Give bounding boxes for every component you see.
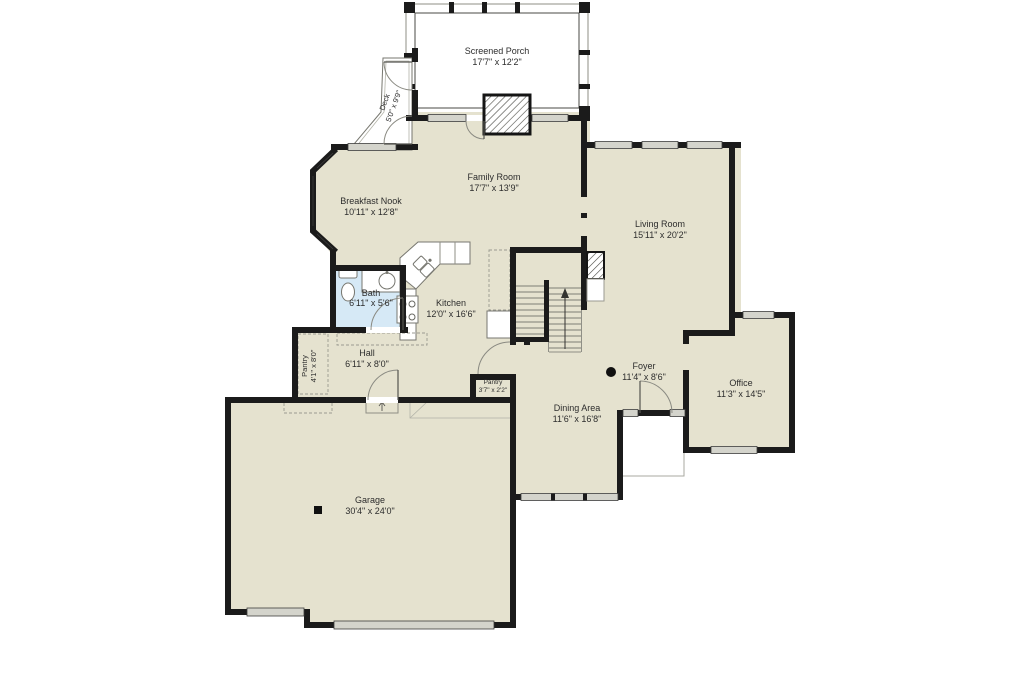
room-label-screened-porch: Screened Porch xyxy=(465,46,530,56)
wall-segment xyxy=(789,312,795,453)
room-dims-screened-porch: 17'7" x 12'2" xyxy=(472,57,521,67)
kitchen-cabinet-box xyxy=(487,311,513,338)
post-marker xyxy=(314,506,322,514)
wall-segment xyxy=(412,90,418,118)
window xyxy=(687,142,722,149)
room-label-office: Office xyxy=(729,378,752,388)
front-door-sidelite xyxy=(623,410,638,417)
room-label-garage: Garage xyxy=(355,495,385,505)
porch-fireplace xyxy=(484,95,530,134)
window xyxy=(642,142,678,149)
room-label-pantry: Pantry xyxy=(300,355,309,377)
floor-plan-page: Screened Porch 17'7" x 12'2" Deck 5'0" x… xyxy=(0,0,1024,681)
room-label-dining-area: Dining Area xyxy=(554,403,601,413)
wall-segment xyxy=(510,247,587,253)
garage-door-opening xyxy=(366,397,398,403)
room-dims-kitchen: 12'0" x 16'6" xyxy=(426,309,475,319)
wall-segment xyxy=(510,374,516,628)
vanity-faucet xyxy=(386,271,389,274)
room-label-bath: Bath xyxy=(362,288,381,298)
wall-segment xyxy=(225,397,231,615)
wall-segment xyxy=(330,248,336,333)
wall-segment xyxy=(412,144,418,150)
room-label-family-room: Family Room xyxy=(467,172,520,182)
room-label-foyer: Foyer xyxy=(632,361,655,371)
living-hearth xyxy=(587,279,604,301)
wall-segment xyxy=(729,142,735,336)
window xyxy=(532,115,568,122)
room-dims-hall: 6'11" x 8'0" xyxy=(345,359,389,369)
wall-segment xyxy=(683,330,735,336)
window xyxy=(595,142,632,149)
wall-segment xyxy=(331,265,406,271)
floor-plan: Screened Porch 17'7" x 12'2" Deck 5'0" x… xyxy=(0,0,1024,681)
room-dims-family-room: 17'7" x 13'9" xyxy=(469,183,518,193)
wall-segment xyxy=(617,410,623,500)
window-band xyxy=(521,494,618,501)
room-label-living-room: Living Room xyxy=(635,219,685,229)
photo-point-marker xyxy=(606,367,616,377)
wall-segment xyxy=(470,374,476,403)
garage-door-right xyxy=(334,621,494,629)
wall-segment xyxy=(304,609,310,628)
garage-door-left xyxy=(247,608,304,616)
room-dims-foyer: 11'4" x 8'6" xyxy=(622,372,666,382)
window xyxy=(743,312,774,319)
wall-segment xyxy=(292,327,298,403)
room-label-hall: Hall xyxy=(359,348,375,358)
room-label-pantry-small: Pantry xyxy=(484,379,504,386)
living-chimney xyxy=(587,252,604,279)
room-dims-pantry: 4'1" x 8'0" xyxy=(309,349,318,382)
window-mullion xyxy=(551,494,555,501)
room-dims-garage: 30'4" x 24'0" xyxy=(345,506,394,516)
room-dims-breakfast-nook: 10'11" x 12'8" xyxy=(344,207,398,217)
room-dims-office: 11'3" x 14'5" xyxy=(717,389,766,399)
room-label-kitchen: Kitchen xyxy=(436,298,466,308)
wall-segment xyxy=(412,48,418,62)
room-dims-living-room: 15'11" x 20'2" xyxy=(633,230,687,240)
front-stoop xyxy=(621,414,684,476)
window-mullion xyxy=(583,494,587,501)
wall-segment xyxy=(683,336,689,344)
wall-tick xyxy=(524,340,530,345)
room-dims-pantry-small: 3'7" x 2'2" xyxy=(479,387,508,394)
wall-tick xyxy=(581,213,587,218)
wall-segment xyxy=(581,236,587,252)
room-dims-dining-area: 11'6" x 16'8" xyxy=(553,414,602,424)
wall-segment xyxy=(581,115,587,197)
wall-segment xyxy=(510,247,516,345)
window xyxy=(428,115,466,122)
wall-segment xyxy=(544,280,549,342)
window xyxy=(711,447,757,454)
vanity-sink xyxy=(379,273,395,289)
room-dims-bath: 6'11" x 5'6" xyxy=(349,298,393,308)
room-label-breakfast-nook: Breakfast Nook xyxy=(340,196,402,206)
porch-door-opening xyxy=(466,115,484,121)
